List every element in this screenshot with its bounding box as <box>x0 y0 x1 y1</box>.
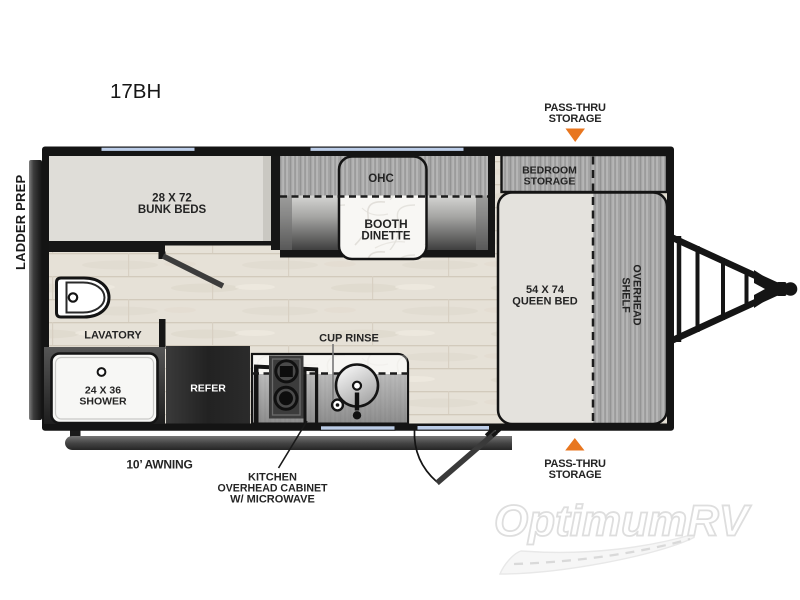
svg-text:28 X 72: 28 X 72 <box>152 193 192 205</box>
svg-text:OptimumRV: OptimumRV <box>494 497 752 546</box>
svg-text:DINETTE: DINETTE <box>361 231 411 243</box>
svg-text:W/ MICROWAVE: W/ MICROWAVE <box>230 494 315 506</box>
svg-text:REFER: REFER <box>190 383 226 395</box>
svg-text:OHC: OHC <box>368 173 394 185</box>
svg-text:SHELF: SHELF <box>620 277 632 313</box>
svg-text:10’ AWNING: 10’ AWNING <box>126 458 192 472</box>
svg-text:CUP RINSE: CUP RINSE <box>319 333 379 345</box>
svg-text:LAVATORY: LAVATORY <box>84 330 142 342</box>
svg-text:QUEEN BED: QUEEN BED <box>512 296 577 308</box>
svg-text:LADDER PREP: LADDER PREP <box>13 174 28 270</box>
svg-text:BOOTH: BOOTH <box>364 217 407 231</box>
svg-text:54 X 74: 54 X 74 <box>526 284 565 296</box>
svg-text:SHOWER: SHOWER <box>79 396 127 408</box>
svg-text:STORAGE: STORAGE <box>524 176 576 188</box>
svg-text:STORAGE: STORAGE <box>549 113 602 125</box>
svg-text:BUNK BEDS: BUNK BEDS <box>138 204 207 216</box>
svg-text:STORAGE: STORAGE <box>549 469 602 481</box>
svg-text:17BH: 17BH <box>110 80 161 103</box>
